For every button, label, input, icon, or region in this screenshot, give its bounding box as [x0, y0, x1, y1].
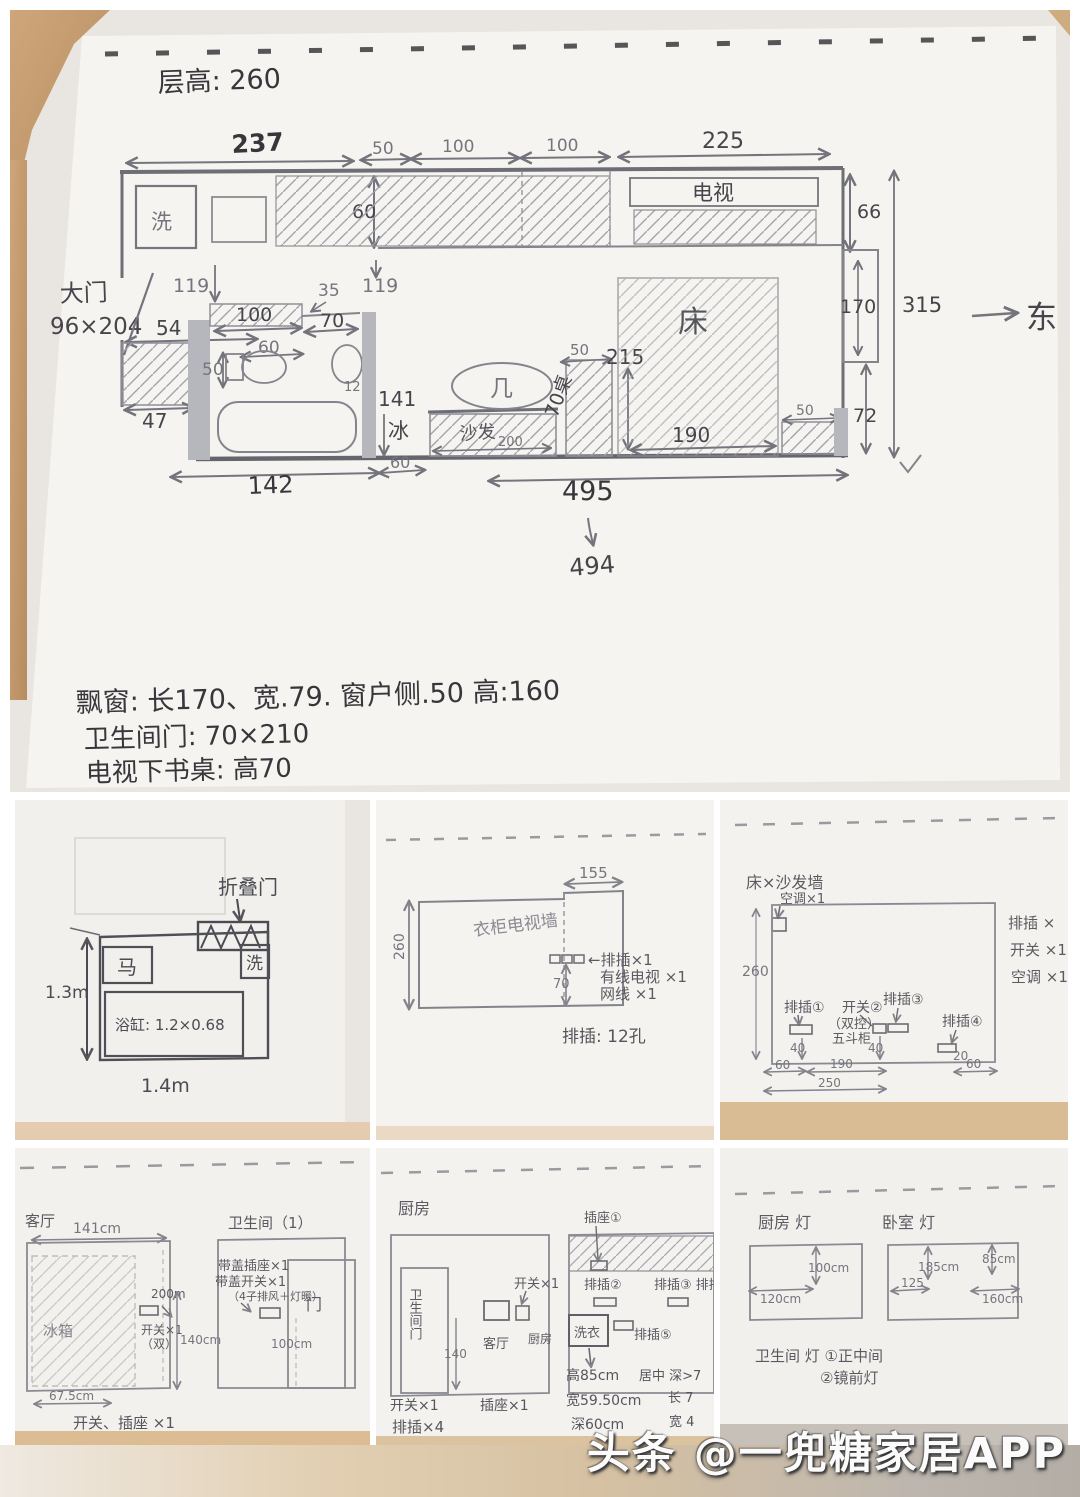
- dim-66: 66: [857, 201, 881, 223]
- door-label: 大门: [59, 278, 108, 308]
- door-label: 门: [306, 1295, 322, 1314]
- lights-photo: 厨房 灯 卧室 灯 100cm 120cm 185cm 85cm 125 160…: [720, 1148, 1068, 1445]
- lights-sketch: 厨房 灯 卧室 灯 100cm 120cm 185cm 85cm 125 160…: [720, 1148, 1068, 1445]
- dim-100b: 100: [546, 136, 578, 156]
- desk-strip: [566, 360, 612, 456]
- bathroom-detail-sketch: 折叠门 马 洗 浴缸: 1.2×0.68 1.3m 1.4m: [15, 800, 370, 1140]
- dim-47: 47: [142, 409, 167, 433]
- wood-strip: [15, 1122, 370, 1140]
- dim-line-100a: [412, 158, 518, 159]
- room-label: 客厅: [25, 1212, 55, 1230]
- top-hatch-band: [276, 176, 610, 246]
- dim-100c: 100: [236, 304, 272, 326]
- length-note: 长 7: [668, 1391, 693, 1406]
- dim-237: 237: [231, 127, 285, 159]
- main-floorplan-sketch: 层高: 260 237 50 100 100 225 60 66 洗 电视 大门…: [10, 10, 1070, 792]
- dim-67: 67.5cm: [49, 1389, 94, 1403]
- dim-60c: 60: [390, 453, 410, 472]
- dim-225: 225: [702, 129, 744, 154]
- list-ac: 空调 ×1: [1011, 968, 1068, 986]
- cabinet-label: 五斗柜: [832, 1032, 871, 1047]
- dim-494: 494: [568, 550, 616, 582]
- kitchen2-label: 厨房: [528, 1331, 552, 1346]
- strip4-label: 排插④: [942, 1014, 983, 1030]
- dim-200: 200: [498, 435, 523, 450]
- east-label: 东: [1026, 300, 1057, 336]
- dim-60b-line: [955, 1071, 996, 1072]
- height-label: 1.3m: [45, 983, 89, 1003]
- switch2-label: 开关②: [842, 1000, 883, 1016]
- bath-light-note-1: 卫生间 灯 ①正中间: [755, 1347, 883, 1365]
- dim-67-line: [35, 1403, 110, 1404]
- dim-141: 141cm: [73, 1221, 121, 1237]
- net-label: 网线 ×1: [600, 985, 657, 1003]
- living-label: 客厅: [483, 1336, 509, 1352]
- dim-50b: 50: [202, 360, 224, 380]
- list-switch: 开关 ×1: [1010, 941, 1067, 959]
- bottom-socket-note: 插座×1: [480, 1398, 529, 1414]
- dim-495: 495: [562, 476, 614, 507]
- strip1-label: 排插①: [784, 1000, 825, 1016]
- dim-119b: 119: [362, 275, 398, 297]
- dim-170: 170: [840, 296, 876, 318]
- fridge-label: 冰: [388, 419, 409, 443]
- wall-pillar-nook: [834, 408, 848, 456]
- width-label: 1.4m: [141, 1075, 190, 1097]
- center-note: 居中 深>7: [639, 1369, 701, 1384]
- door-size: 96×204: [50, 314, 142, 340]
- coffee-table-label: 几: [490, 376, 513, 402]
- cable-label: 有线电视 ×1: [600, 968, 687, 986]
- dim-72: 72: [853, 405, 877, 427]
- note-tv-desk: 电视下书桌: 高70: [85, 754, 292, 789]
- dim-60b: 60: [966, 1057, 981, 1071]
- socket1-label: 插座①: [584, 1211, 622, 1226]
- dim-140: 140: [444, 1347, 467, 1361]
- dim-120: 120cm: [760, 1292, 801, 1306]
- dim-100: 100cm: [808, 1261, 849, 1275]
- bottom-switch-note: 开关×1: [390, 1398, 439, 1414]
- nook-hatch: [782, 422, 840, 454]
- dim-260: 260: [392, 933, 408, 960]
- dim-40a: 40: [790, 1041, 805, 1055]
- bathtub-label: 浴缸: 1.2×0.68: [115, 1016, 225, 1034]
- dim-190-line: [808, 1071, 885, 1072]
- sofa-label: 沙发: [459, 422, 496, 445]
- tv-label: 电视: [692, 181, 734, 205]
- dim-t50: 50: [570, 341, 589, 359]
- bath-door-label: 卫生间门: [407, 1288, 423, 1340]
- sofa-wall-photo: 床×沙发墙 空调×1 260 排插 × 开关 ×1 空调 ×1 排插① 开关② …: [720, 800, 1068, 1140]
- fridge-wall-sketch: 客厅 141cm 冰箱 200m 开关×1 （双） 140cm 卫生间（1） 带…: [15, 1148, 370, 1445]
- wood-strip: [15, 1431, 370, 1445]
- dim-190: 190: [672, 423, 710, 447]
- covered-socket-label: 带盖插座×1: [218, 1259, 289, 1274]
- entry-hatch: [122, 343, 190, 405]
- dim-142: 142: [247, 470, 294, 500]
- fridge-zone: [32, 1256, 135, 1386]
- strip-label: ←排插×1: [588, 951, 653, 969]
- tv-wall-photo: 155 260 衣柜电视墙 ←排插×1 有线电视 ×1 网线 ×1 70 排插:…: [376, 800, 714, 1140]
- sink-label: 洗: [246, 954, 263, 974]
- wall-title: 床×沙发墙: [746, 873, 823, 892]
- list-strip: 排插 ×: [1008, 914, 1055, 932]
- wood-strip: [720, 1102, 1068, 1140]
- dim-70: 70: [320, 310, 344, 332]
- bed-label: 床: [678, 305, 708, 340]
- strip2-label: 排插②: [584, 1278, 622, 1293]
- width-note: 宽59.50cm: [566, 1392, 641, 1409]
- paper: [15, 800, 370, 1140]
- wall-pillar-right: [362, 312, 376, 458]
- panel-title: 厨房: [398, 1199, 430, 1218]
- kitchen-wall-sketch: 厨房 卫生间门 140 开关×1 客厅 厨房 插座① 排插② 排插③ 排插④ 洗…: [376, 1148, 714, 1445]
- tv-wall-sketch: 155 260 衣柜电视墙 ←排插×1 有线电视 ×1 网线 ×1 70 排插:…: [376, 800, 714, 1140]
- dim-100a: 100: [442, 137, 474, 157]
- wall-pillar-left: [188, 320, 210, 460]
- dim-185: 185cm: [918, 1260, 959, 1274]
- dim-315: 315: [902, 293, 942, 317]
- bath-light-note-2: ②镜前灯: [820, 1369, 878, 1387]
- dim-125: 125: [901, 1276, 924, 1290]
- strip3-label: 排插③: [883, 992, 924, 1008]
- note-bath-door: 卫生间门: 70×210: [83, 719, 309, 755]
- dim-141: 141: [378, 387, 416, 411]
- dim-35: 35: [318, 281, 340, 301]
- wood-table-edge: [10, 160, 27, 700]
- dim-60a: 60: [775, 1058, 790, 1072]
- dim-50: 50: [372, 139, 394, 159]
- fridge-label: 冰箱: [43, 1322, 73, 1340]
- height-note: 高85cm: [566, 1367, 619, 1384]
- dual-label: （双）: [141, 1337, 177, 1351]
- kitchen-wall-photo: 厨房 卫生间门 140 开关×1 客厅 厨房 插座① 排插② 排插③ 排插④ 洗…: [376, 1148, 714, 1445]
- ceiling-height-note: 层高: 260: [157, 64, 281, 99]
- watermark: 头条 @一兜糖家居APP: [587, 1419, 1066, 1481]
- washer-label: 洗衣: [574, 1325, 600, 1341]
- sofa-wall-sketch: 床×沙发墙 空调×1 260 排插 × 开关 ×1 空调 ×1 排插① 开关② …: [720, 800, 1068, 1140]
- dim-line-100b: [522, 157, 608, 158]
- switch-label: 开关×1: [514, 1277, 559, 1292]
- dim-200: 200m: [151, 1287, 186, 1301]
- dim-190: 190: [830, 1057, 853, 1071]
- dim-160: 160cm: [982, 1292, 1023, 1306]
- strip5-label: 排插⑤: [634, 1328, 672, 1343]
- strip1-arrow: [798, 1015, 799, 1024]
- dim-85: 85cm: [982, 1252, 1016, 1266]
- wood-strip: [376, 1126, 714, 1140]
- dim-155: 155: [579, 864, 608, 882]
- bedroom-light-title: 卧室 灯: [882, 1213, 935, 1232]
- dim-260: 260: [742, 964, 769, 980]
- dim-r50: 50: [796, 403, 814, 419]
- folding-door-label: 折叠门: [218, 875, 278, 899]
- tv-hatch: [634, 210, 816, 244]
- dim-12: 12: [344, 380, 361, 395]
- dim-40b: 40: [868, 1041, 883, 1055]
- washer-label: 洗: [151, 210, 172, 234]
- dim-119a: 119: [173, 275, 209, 297]
- toilet-label: 马: [117, 955, 137, 979]
- bottom-note: 开关、插座 ×1: [73, 1414, 175, 1432]
- bottom-strip-note: 排插×4: [392, 1418, 444, 1436]
- kitchen-light-title: 厨房 灯: [758, 1213, 811, 1232]
- fridge-wall-photo: 客厅 141cm 冰箱 200m 开关×1 （双） 140cm 卫生间（1） 带…: [15, 1148, 370, 1445]
- dim-70: 70: [553, 977, 570, 992]
- dim-140: 140cm: [180, 1333, 221, 1347]
- dim-100: 100cm: [271, 1337, 312, 1351]
- dim-250: 250: [818, 1076, 841, 1090]
- covered-switch-label: 带盖开关×1: [215, 1275, 286, 1290]
- bathroom-detail-photo: 折叠门 马 洗 浴缸: 1.2×0.68 1.3m 1.4m: [15, 800, 370, 1140]
- page-edge: [345, 800, 370, 1140]
- dim-54: 54: [156, 316, 181, 340]
- main-floorplan-photo: 层高: 260 237 50 100 100 225 60 66 洗 电视 大门…: [10, 10, 1070, 792]
- dim-line-50: [362, 159, 410, 160]
- strip-note: 排插: 12孔: [562, 1027, 646, 1047]
- strip34-label: 排插③ 排插④: [654, 1278, 714, 1293]
- bath-title: 卫生间（1）: [228, 1214, 313, 1232]
